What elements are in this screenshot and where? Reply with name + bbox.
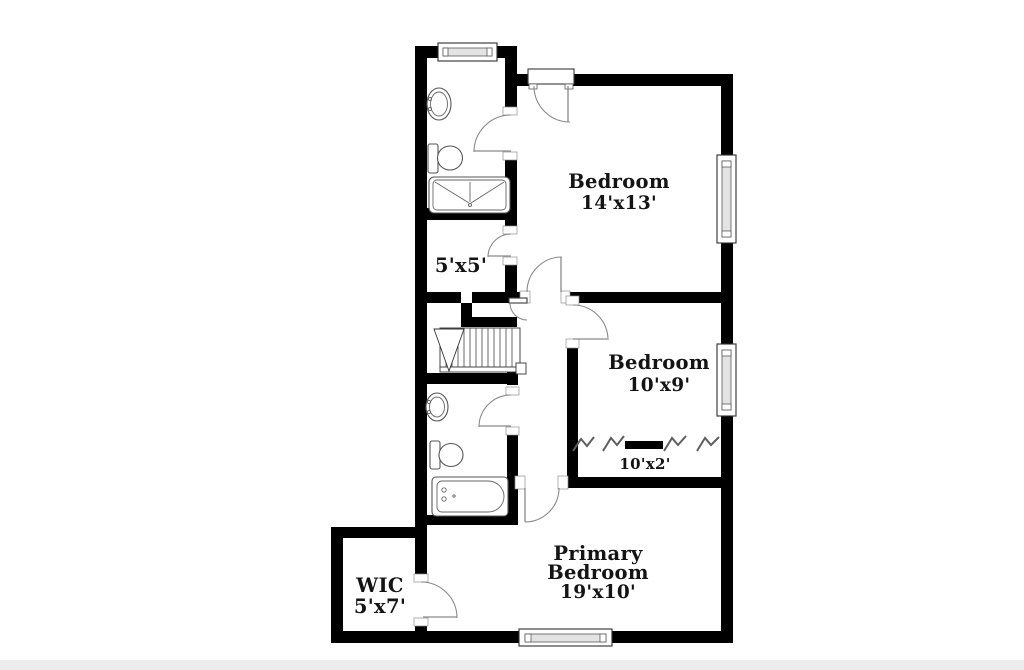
wall bbox=[567, 477, 733, 488]
window bbox=[438, 43, 497, 61]
door-swing bbox=[414, 574, 457, 626]
hanger-icon bbox=[697, 437, 719, 451]
door-swing bbox=[528, 69, 574, 122]
door-swing bbox=[488, 226, 517, 265]
door-swing bbox=[474, 107, 517, 160]
door-swing bbox=[566, 296, 608, 348]
wall bbox=[505, 58, 517, 115]
window bbox=[519, 629, 612, 646]
wall bbox=[562, 292, 733, 303]
bedroom2-closet-dims: 10'x2' bbox=[619, 455, 670, 473]
bedroom1-label: Bedroom bbox=[568, 170, 670, 193]
wall bbox=[331, 527, 427, 538]
wall bbox=[567, 340, 578, 478]
door-swing bbox=[479, 387, 519, 435]
stair-rail bbox=[440, 367, 518, 372]
wall bbox=[572, 74, 733, 86]
sink-icon bbox=[426, 393, 448, 421]
bedroom2-dims: 10'x9' bbox=[628, 375, 691, 396]
hanger-icon bbox=[603, 436, 624, 451]
hall-closet-dims: 5'x5' bbox=[435, 254, 487, 277]
bedroom2-label: Bedroom bbox=[608, 351, 710, 374]
wall bbox=[415, 515, 427, 575]
door-swing bbox=[509, 298, 527, 320]
wall bbox=[415, 373, 511, 384]
closet-rod-icon bbox=[573, 436, 719, 451]
floor-plan-page: Bedroom 14'x13' Bedroom 10'x9' 10'x2' Pr… bbox=[0, 0, 1024, 670]
room-labels: Bedroom 14'x13' Bedroom 10'x9' 10'x2' Pr… bbox=[354, 170, 710, 618]
door-swing bbox=[515, 476, 568, 522]
shower-icon bbox=[429, 177, 510, 213]
floor-plan: Bedroom 14'x13' Bedroom 10'x9' 10'x2' Pr… bbox=[0, 0, 1024, 670]
closet-rod-bar bbox=[625, 441, 663, 449]
hanger-icon bbox=[664, 436, 686, 451]
bedroom1-dims: 14'x13' bbox=[581, 193, 657, 214]
wall bbox=[415, 292, 461, 303]
walls bbox=[331, 46, 733, 643]
door-swing bbox=[520, 257, 570, 303]
primary-bedroom-label-line2: Bedroom bbox=[547, 561, 649, 584]
stair-rail-cap bbox=[516, 363, 526, 374]
wall bbox=[415, 46, 427, 527]
wic-label: WIC bbox=[355, 574, 403, 597]
photo-edge-band bbox=[0, 660, 1024, 670]
toilet-icon bbox=[428, 144, 463, 173]
wic-dims: 5'x7' bbox=[354, 595, 406, 618]
primary-bedroom-dims: 19'x10' bbox=[560, 582, 636, 603]
sink-icon bbox=[427, 88, 451, 120]
wall bbox=[461, 317, 517, 327]
window bbox=[717, 155, 736, 243]
wall bbox=[331, 527, 343, 643]
stairs bbox=[434, 328, 526, 374]
window bbox=[717, 344, 736, 416]
bathtub-icon bbox=[432, 477, 508, 516]
toilet-icon bbox=[430, 441, 463, 469]
